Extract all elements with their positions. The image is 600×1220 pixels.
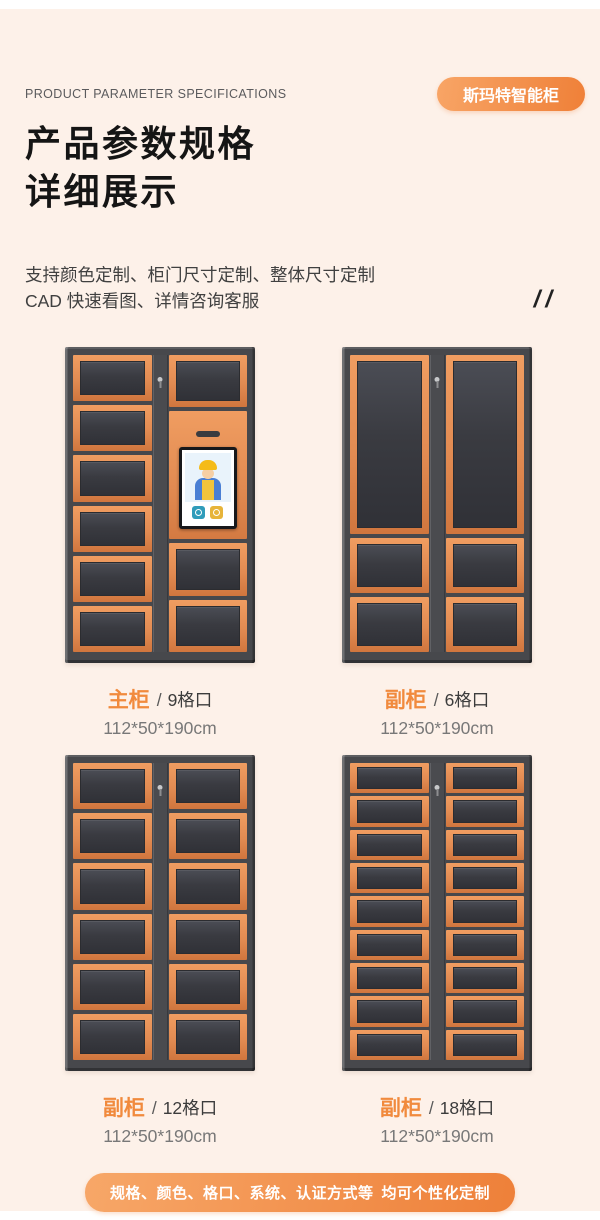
cabinet-image-main-9 <box>65 347 255 663</box>
door-column-right <box>169 355 248 652</box>
door-window <box>453 603 518 646</box>
center-frame <box>430 355 445 652</box>
cabinet-figure-sub-12: 副柜/12格口 112*50*190cm <box>65 755 255 1147</box>
door-window <box>80 562 145 596</box>
door-window <box>176 920 241 954</box>
cabinet-compartment-count: 18格口 <box>440 1098 494 1118</box>
door-window <box>453 834 518 856</box>
cabinet-compartment-count: 12格口 <box>163 1098 217 1118</box>
page-title: 产品参数规格详细展示 <box>25 120 575 216</box>
locker-door <box>169 964 248 1010</box>
customization-pill: 规格、颜色、格口、系统、认证方式等 均可个性化定制 <box>85 1173 515 1212</box>
door-window <box>357 1034 422 1056</box>
door-window <box>176 549 241 589</box>
cabinet-name: 副柜 <box>103 1097 145 1120</box>
brand-badge: 斯玛特智能柜 <box>437 77 585 111</box>
door-window <box>453 544 518 587</box>
locker-door <box>73 964 152 1010</box>
locker-door <box>169 813 248 859</box>
worker-vest <box>202 480 214 500</box>
door-window <box>453 767 518 789</box>
cabinet-dimensions: 112*50*190cm <box>380 718 494 739</box>
door-window <box>176 819 241 853</box>
cabinet-image-sub-18 <box>342 755 532 1071</box>
cabinet-caption: 副柜/12格口 <box>103 1092 217 1122</box>
keyhole-icon <box>158 785 163 790</box>
door-column-right <box>169 763 248 1060</box>
center-frame <box>430 763 445 1060</box>
caption-separator: / <box>434 690 439 710</box>
door-window <box>80 361 145 395</box>
door-window <box>453 1000 518 1022</box>
locker-door <box>350 963 429 993</box>
door-column-left <box>350 355 429 652</box>
badge-yellow-icon <box>210 506 223 519</box>
locker-door <box>446 896 525 926</box>
locker-door <box>350 355 429 534</box>
cabinet-dimensions: 112*50*190cm <box>103 1126 217 1147</box>
door-window <box>357 361 422 528</box>
eyebrow-text: PRODUCT PARAMETER SPECIFICATIONS <box>25 87 286 101</box>
door-window <box>357 934 422 956</box>
door-window <box>453 1034 518 1056</box>
door-window <box>80 411 145 445</box>
cabinet-grid: 主柜/9格口 112*50*190cm 副柜/6格口 112*50*190cm … <box>25 347 575 1147</box>
door-window <box>176 361 241 401</box>
subtitle-line-1: 支持颜色定制、柜门尺寸定制、整体尺寸定制 <box>25 262 375 288</box>
subtitle-line-2: CAD 快速看图、详情咨询客服 <box>25 288 375 314</box>
cabinet-name: 副柜 <box>385 689 427 712</box>
kiosk-panel <box>169 411 248 539</box>
locker-door <box>446 930 525 960</box>
subtitle-text: 支持颜色定制、柜门尺寸定制、整体尺寸定制 CAD 快速看图、详情咨询客服 <box>25 262 375 314</box>
decor-slashes: // <box>534 286 575 314</box>
locker-door <box>350 930 429 960</box>
app-badges <box>185 502 231 523</box>
product-spec-section: PRODUCT PARAMETER SPECIFICATIONS 斯玛特智能柜 … <box>0 9 600 1211</box>
section-topbar: PRODUCT PARAMETER SPECIFICATIONS 斯玛特智能柜 <box>25 9 575 111</box>
center-frame <box>153 355 168 652</box>
cabinet-dimensions: 112*50*190cm <box>103 718 217 739</box>
door-column-left <box>73 763 152 1060</box>
locker-door <box>446 830 525 860</box>
center-frame <box>153 763 168 1060</box>
door-column-left <box>73 355 152 652</box>
cabinet-figure-sub-6: 副柜/6格口 112*50*190cm <box>342 347 532 739</box>
locker-door <box>350 863 429 893</box>
locker-door <box>350 996 429 1026</box>
locker-door <box>169 600 248 652</box>
door-window <box>357 544 422 587</box>
locker-door <box>350 1030 429 1060</box>
cabinet-caption: 副柜/18格口 <box>380 1092 494 1122</box>
locker-door <box>350 830 429 860</box>
door-window <box>176 970 241 1004</box>
door-window <box>176 606 241 646</box>
cabinet-body <box>73 355 247 652</box>
door-window <box>453 934 518 956</box>
locker-door <box>446 763 525 793</box>
cabinet-image-sub-6 <box>342 347 532 663</box>
door-window <box>453 800 518 822</box>
badge-blue-icon <box>192 506 205 519</box>
door-window <box>80 819 145 853</box>
cabinet-compartment-count: 9格口 <box>168 690 213 710</box>
cabinet-figure-sub-18: 副柜/18格口 112*50*190cm <box>342 755 532 1147</box>
door-window <box>80 970 145 1004</box>
locker-door <box>446 538 525 593</box>
locker-door <box>446 863 525 893</box>
keyhole-icon <box>435 377 440 382</box>
caption-separator: / <box>157 690 162 710</box>
door-window <box>357 867 422 889</box>
locker-door <box>73 405 152 451</box>
locker-door <box>73 1014 152 1060</box>
cabinet-image-sub-12 <box>65 755 255 1071</box>
locker-door <box>169 355 248 407</box>
locker-door <box>350 538 429 593</box>
locker-door <box>73 914 152 960</box>
keyhole-icon <box>435 785 440 790</box>
cabinet-body <box>350 355 524 652</box>
cabinet-dimensions: 112*50*190cm <box>380 1126 494 1147</box>
locker-door <box>446 996 525 1026</box>
door-window <box>80 1020 145 1054</box>
locker-door <box>169 1014 248 1060</box>
locker-door <box>73 506 152 552</box>
cabinet-figure-main-9: 主柜/9格口 112*50*190cm <box>65 347 255 739</box>
door-column-left <box>350 763 429 1060</box>
card-slot-icon <box>196 431 220 437</box>
door-window <box>453 361 518 528</box>
door-window <box>357 900 422 922</box>
locker-door <box>169 543 248 595</box>
door-column-right <box>446 763 525 1060</box>
cabinet-compartment-count: 6格口 <box>445 690 490 710</box>
door-window <box>80 769 145 803</box>
locker-door <box>350 763 429 793</box>
door-window <box>453 900 518 922</box>
worker-illustration <box>185 453 231 502</box>
locker-door <box>350 896 429 926</box>
locker-door <box>73 455 152 501</box>
title-line-2: 详细展示 <box>25 171 179 212</box>
worker-helmet-icon <box>199 460 217 470</box>
door-window <box>357 767 422 789</box>
door-window <box>357 603 422 646</box>
locker-door <box>350 796 429 826</box>
locker-door <box>446 355 525 534</box>
door-window <box>357 834 422 856</box>
cabinet-name: 主柜 <box>108 689 150 712</box>
title-line-1: 产品参数规格 <box>25 123 256 164</box>
locker-door <box>169 763 248 809</box>
cabinet-body <box>350 763 524 1060</box>
locker-door <box>446 1030 525 1060</box>
cabinet-name: 副柜 <box>380 1097 422 1120</box>
kiosk-screen <box>179 447 237 529</box>
door-window <box>176 1020 241 1054</box>
cabinet-caption: 副柜/6格口 <box>385 684 490 714</box>
locker-door <box>446 796 525 826</box>
locker-door <box>73 556 152 602</box>
door-window <box>80 461 145 495</box>
keyhole-icon <box>158 377 163 382</box>
door-window <box>453 967 518 989</box>
locker-door <box>169 914 248 960</box>
door-window <box>176 769 241 803</box>
locker-door <box>73 813 152 859</box>
door-window <box>453 867 518 889</box>
caption-separator: / <box>429 1098 434 1118</box>
door-window <box>80 920 145 954</box>
door-window <box>80 612 145 646</box>
cabinet-caption: 主柜/9格口 <box>108 684 213 714</box>
door-column-right <box>446 355 525 652</box>
caption-separator: / <box>152 1098 157 1118</box>
door-window <box>357 800 422 822</box>
locker-door <box>350 597 429 652</box>
door-window <box>357 967 422 989</box>
door-window <box>176 869 241 903</box>
cabinet-body <box>73 763 247 1060</box>
locker-door <box>446 597 525 652</box>
locker-door <box>73 763 152 809</box>
locker-door <box>169 863 248 909</box>
locker-door <box>73 606 152 652</box>
door-window <box>80 869 145 903</box>
subtitle-row: 支持颜色定制、柜门尺寸定制、整体尺寸定制 CAD 快速看图、详情咨询客服 // <box>25 262 575 314</box>
door-window <box>357 1000 422 1022</box>
locker-door <box>73 355 152 401</box>
locker-door <box>446 963 525 993</box>
locker-door <box>73 863 152 909</box>
kiosk-screen-content <box>182 450 234 526</box>
door-window <box>80 512 145 546</box>
